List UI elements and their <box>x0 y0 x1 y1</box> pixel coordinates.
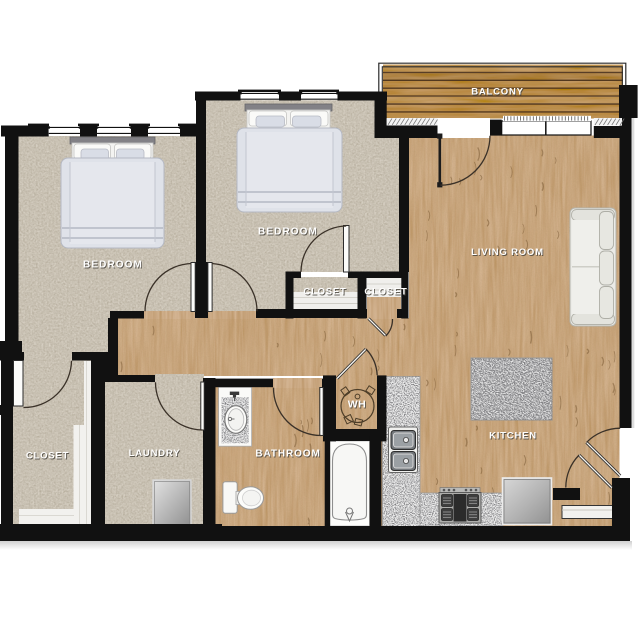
svg-text:BEDROOM: BEDROOM <box>83 260 143 271</box>
svg-text:WH: WH <box>348 399 367 411</box>
svg-text:CLOSET: CLOSET <box>303 287 346 298</box>
svg-text:KITCHEN: KITCHEN <box>489 431 537 442</box>
svg-text:BATHROOM: BATHROOM <box>255 449 320 460</box>
svg-text:BALCONY: BALCONY <box>471 87 524 98</box>
svg-text:LIVING ROOM: LIVING ROOM <box>471 247 544 258</box>
svg-text:LAUNDRY: LAUNDRY <box>129 448 181 459</box>
svg-text:CLOSET: CLOSET <box>26 451 69 462</box>
svg-text:BEDROOM: BEDROOM <box>258 227 318 238</box>
svg-text:CLOSET: CLOSET <box>364 287 407 298</box>
